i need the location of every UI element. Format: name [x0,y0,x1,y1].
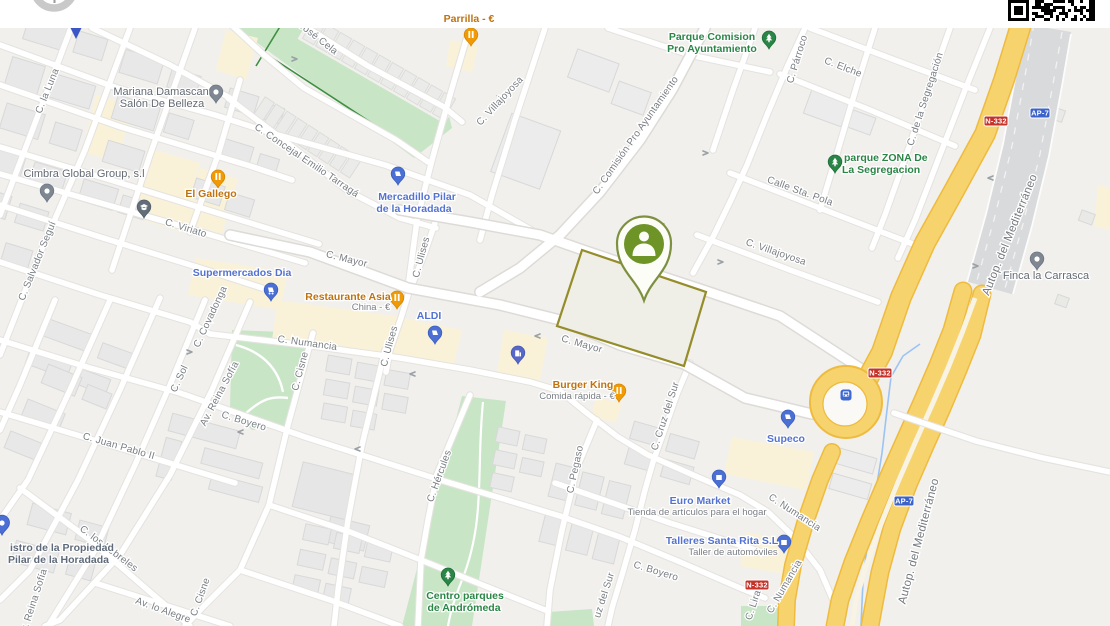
svg-text:N-332: N-332 [746,581,767,590]
svg-text:Pilar de la Horadada: Pilar de la Horadada [8,554,109,566]
svg-text:La Segregacion: La Segregacion [842,164,920,176]
svg-text:Mercadillo Pilar: Mercadillo Pilar [378,191,456,203]
svg-text:El Gallego: El Gallego [185,188,236,200]
svg-text:Taller de automóviles: Taller de automóviles [688,547,777,558]
svg-text:Finca la Carrasca: Finca la Carrasca [1003,270,1090,282]
svg-text:Parrilla - €: Parrilla - € [444,13,495,25]
svg-text:de la Horadada: de la Horadada [376,203,451,215]
svg-text:Mariana Damascan: Mariana Damascan [113,86,208,98]
svg-text:de Andrómeda: de Andrómeda [427,602,500,614]
svg-text:Pro Ayuntamiento: Pro Ayuntamiento [667,43,757,55]
svg-text:China - €: China - € [352,302,391,313]
svg-text:N-332: N-332 [869,369,890,378]
svg-text:Parque Comision: Parque Comision [669,31,755,43]
svg-text:ALDI: ALDI [417,310,442,322]
svg-text:Centro parques: Centro parques [426,590,504,602]
svg-text:parque ZONA De: parque ZONA De [844,152,928,164]
svg-text:Supeco: Supeco [767,433,805,445]
svg-text:Burger King: Burger King [553,379,614,391]
svg-text:Comida rápida - €: Comida rápida - € [539,391,615,402]
svg-text:Tienda de artículos para el ho: Tienda de artículos para el hogar [627,507,766,518]
svg-text:Euro Market: Euro Market [670,495,731,507]
svg-text:Supermercados Dia: Supermercados Dia [193,267,292,279]
svg-text:AP-7: AP-7 [1031,109,1049,118]
svg-text:AP-7: AP-7 [895,497,913,506]
svg-text:Salón De Belleza: Salón De Belleza [120,98,205,110]
svg-text:Cimbra Global Group, s.l: Cimbra Global Group, s.l [23,168,144,180]
svg-text:istro de la Propiedad: istro de la Propiedad [10,542,114,554]
svg-text:N-332: N-332 [985,117,1006,126]
svg-text:Talleres Santa Rita S.L: Talleres Santa Rita S.L [666,535,779,547]
